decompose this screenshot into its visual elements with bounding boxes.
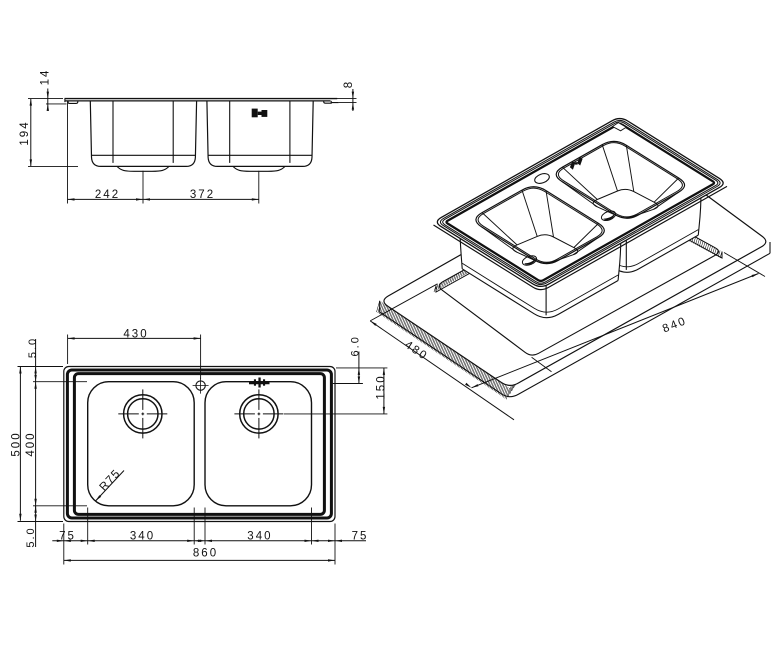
svg-text:150: 150 — [375, 374, 387, 399]
svg-text:500: 500 — [11, 431, 23, 456]
svg-text:372: 372 — [190, 189, 215, 201]
svg-text:340: 340 — [247, 531, 272, 543]
svg-text:8: 8 — [343, 80, 355, 88]
svg-text:14: 14 — [40, 69, 52, 86]
svg-text:5.0: 5.0 — [25, 526, 37, 547]
svg-text:75: 75 — [59, 531, 76, 543]
svg-text:242: 242 — [95, 189, 120, 201]
svg-text:400: 400 — [25, 431, 37, 456]
svg-text:5.0: 5.0 — [27, 337, 39, 358]
svg-text:6.0: 6.0 — [350, 335, 362, 356]
svg-text:194: 194 — [19, 120, 31, 145]
svg-text:860: 860 — [193, 548, 218, 560]
svg-text:430: 430 — [123, 329, 148, 341]
svg-text:340: 340 — [130, 531, 155, 543]
svg-text:75: 75 — [352, 531, 369, 543]
